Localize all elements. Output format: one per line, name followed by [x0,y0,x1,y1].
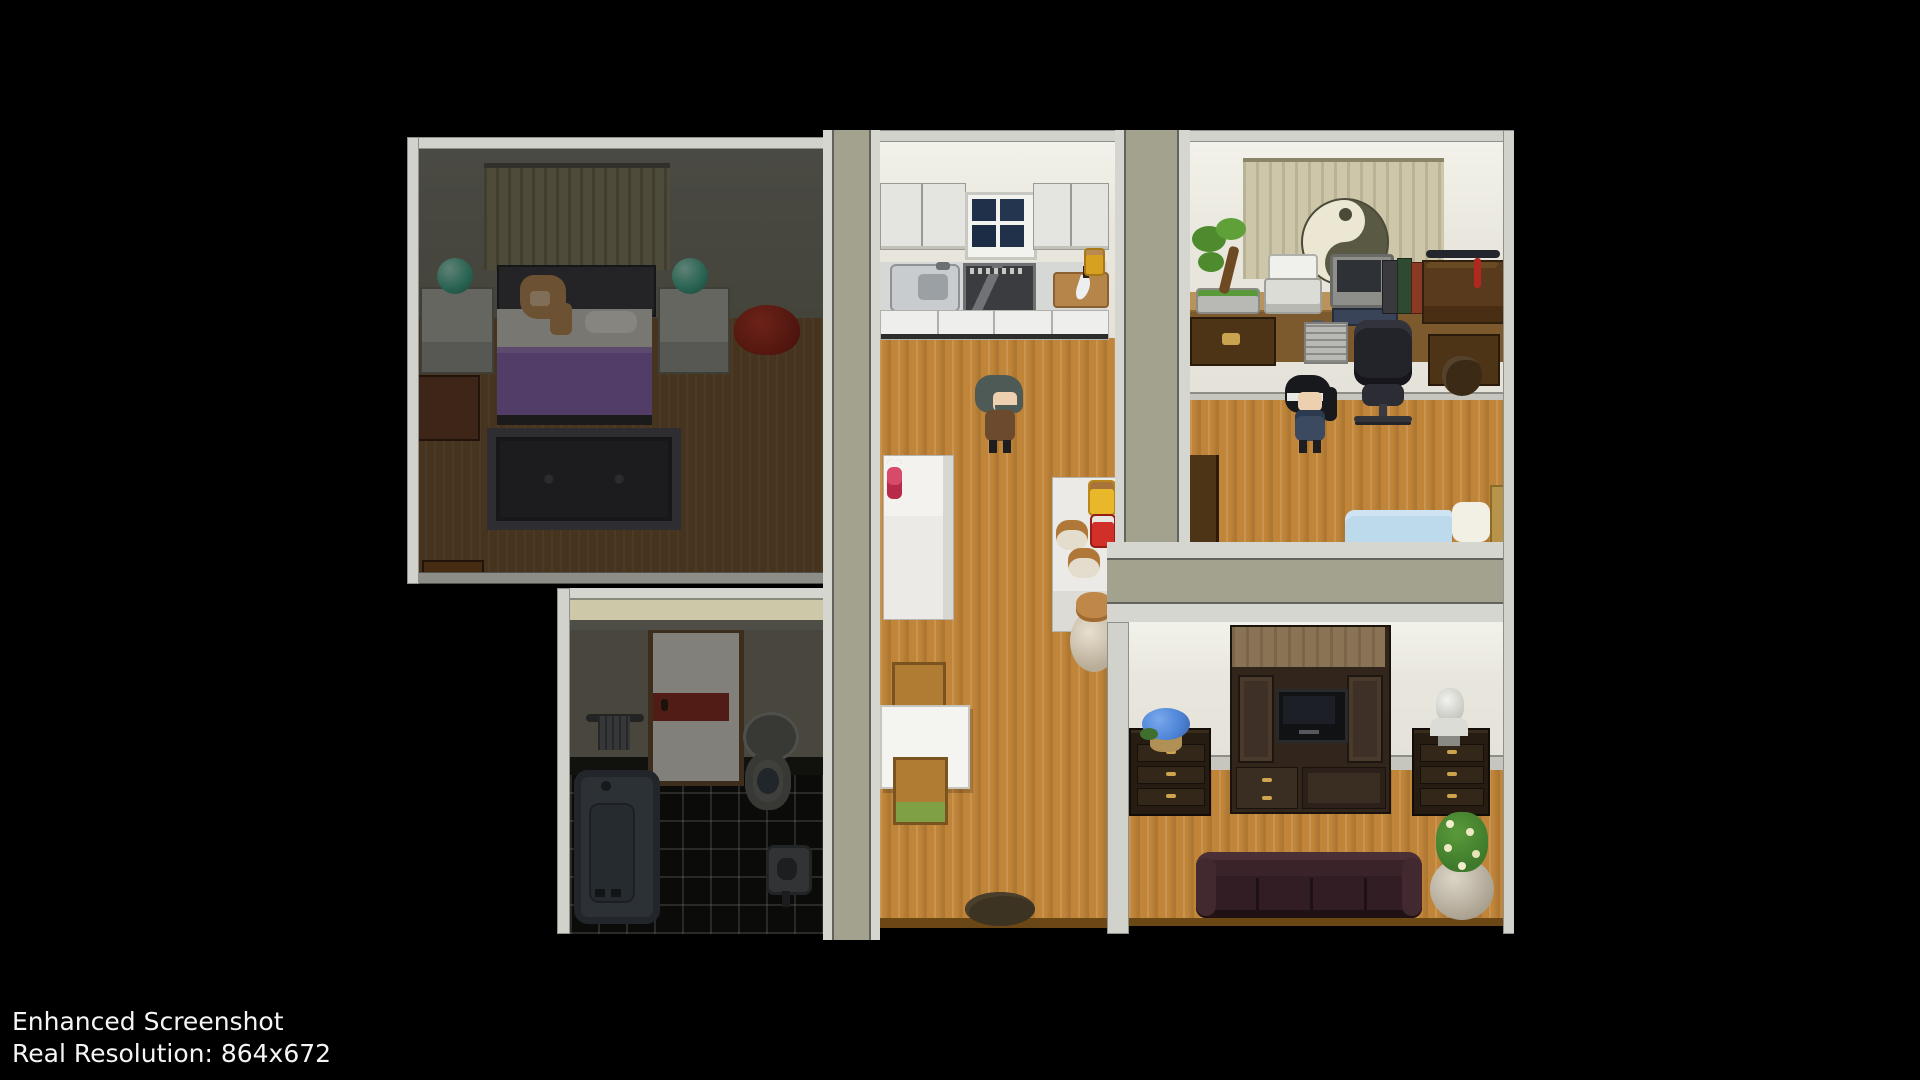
room-bathroom [570,630,823,934]
sleeping-woman-face [530,291,550,306]
bathtub-faucet [595,889,605,897]
character-ponytail-headband [1283,375,1337,455]
bathroom-door [648,630,744,786]
chair-seat [1362,384,1404,406]
drawer [1137,766,1205,784]
character-sleeping-woman [520,275,574,335]
office-bed-post [1490,485,1503,542]
drawer-handle [1262,796,1272,800]
sofa-arm-right [1402,858,1422,916]
office-bed-pillow [1452,502,1490,542]
person-ponytail [1323,387,1337,421]
drawer-handle [1447,794,1457,798]
tv-stand [1299,730,1319,734]
room-bedroom [407,137,834,572]
nightstand-right [658,287,730,374]
stove [963,263,1036,314]
bedroom-left-trim [407,137,419,584]
bust-head [1436,688,1464,722]
red-beanbag [734,305,800,355]
clay-pot-1 [1056,520,1088,550]
marble-bust [1426,688,1472,748]
chair-base [1354,416,1412,422]
ec-header [1232,627,1385,667]
bedroom-bottom-trim [407,572,834,584]
person-face [1298,392,1322,411]
drawer-handle [1222,333,1240,345]
kitchen-counter-front [880,310,1109,340]
leather-sofa [1196,852,1422,924]
wall-living-left-trim [1107,622,1129,934]
drawer-handle [1166,794,1176,798]
kitchen-sink [890,264,960,312]
clay-pot-2 [1068,548,1100,578]
towel [598,716,630,750]
bathtub [574,770,660,924]
office-bed-blanket [1345,510,1452,542]
kitchen-window [965,192,1037,260]
bed-pillow [585,311,637,333]
binder [1397,258,1412,314]
toilet [740,712,796,826]
door-handle [661,699,668,711]
drawer-handle [1166,772,1176,776]
man-body [985,410,1015,441]
window-pane [1000,199,1024,221]
bed-blanket [497,347,652,417]
bathroom-left-trim [557,588,570,934]
window-pane [972,199,996,221]
bonsai-foliage [1198,252,1224,272]
character-man-gray-beard [973,375,1027,455]
honey-jar [1088,480,1115,516]
bathroom-top-wall [557,588,823,630]
drawer-handle [1447,750,1457,754]
sofa-seam [1310,878,1313,912]
sofa-arm-left [1196,858,1216,916]
bathtub-faucet-2 [611,889,621,897]
bonsai-foliage [1216,218,1246,240]
sofa-seam [1256,878,1259,912]
basin-pipe [782,891,790,907]
room-kitchen-dining [880,142,1115,928]
bedroom-low-cabinet [422,560,484,572]
towel-rack [586,710,644,750]
window-pane [1000,225,1024,247]
drawer-handle [1447,772,1457,776]
spice-jar [1084,248,1105,276]
person-body [1295,410,1325,441]
room-office [1190,142,1503,542]
upper-cabinet-left [880,183,966,250]
room-living [1129,622,1503,926]
drawer [1137,788,1205,806]
toilet-bowl [745,752,791,810]
floor-mat [965,892,1035,926]
ec-left-door [1238,675,1274,763]
nightstand-left [420,287,494,374]
basin-top [766,845,812,895]
sleeping-woman-hair-strand [550,303,572,335]
window-pane [972,225,996,247]
monitor-screen [1337,260,1381,292]
entertainment-center [1230,625,1391,814]
stove-buttons [970,268,1026,274]
crystal-ball-right [672,258,708,294]
drawer [1420,766,1484,784]
printer [1264,254,1318,312]
bathtub-basin [589,803,635,903]
yin-dot [1339,208,1352,221]
bathtub-drain [601,781,611,791]
yin-lobe [1325,200,1365,242]
bedroom-dresser [412,375,480,441]
drawer-handle [1262,778,1272,782]
sword-scabbard [1474,258,1481,288]
binder-shelf [1382,256,1426,314]
sofa-seat [1196,876,1422,918]
bonsai-tree [1190,218,1264,314]
satchel [1442,356,1482,396]
tv-screen [1283,696,1335,724]
ec-right-door [1347,675,1383,763]
person-legs [1299,440,1321,453]
wall-column-west [823,130,880,940]
sword-rack [1426,250,1500,258]
wall-column-east [1115,130,1190,577]
ec-cabinets [1302,767,1386,809]
chair-back [1354,320,1412,386]
drawer [1420,788,1484,806]
printer-body [1264,278,1322,314]
sofa-seam [1364,878,1367,912]
bedroom-top-trim [407,137,834,149]
pc-tower [1304,322,1348,364]
ornate-rug [487,428,681,530]
plant-flowers [1446,820,1454,828]
dining-chair-south [893,757,948,825]
potted-plant [1428,812,1496,926]
ec-drawers [1236,767,1298,809]
bust-shoulders [1430,718,1468,736]
desk-drawers-left [1190,317,1276,366]
wash-basin [766,845,810,909]
office-dark-step [1190,455,1219,542]
binder [1382,260,1398,314]
wall-horizontal-south [1107,542,1514,622]
sink-basin [918,274,948,300]
knife-blade [1074,275,1093,302]
plant-foliage [1436,812,1488,872]
bust-pedestal [1438,736,1460,746]
game-viewport[interactable] [404,122,1514,940]
overlay-resolution: Real Resolution: 864x672 [12,1038,331,1070]
sink-faucet [936,262,950,270]
basin-bowl [777,858,797,880]
crystal-ball-left [437,258,473,294]
television [1276,689,1348,743]
overlay-title: Enhanced Screenshot [12,1006,331,1038]
cutting-board [1053,272,1109,308]
sword-side-table [1422,260,1503,324]
upper-cabinet-right [1033,183,1109,250]
toilet-water [757,768,779,794]
bedroom-curtain [484,163,670,270]
man-legs [989,440,1011,453]
overlay-caption: Enhanced Screenshot Real Resolution: 864… [12,1006,331,1070]
office-chair [1346,320,1420,432]
bed-footboard [497,415,652,425]
wall-right-trim [1503,130,1514,934]
flower-leaves [1140,728,1158,740]
blue-flower-pot [1140,708,1192,752]
fire-extinguisher [887,459,902,499]
